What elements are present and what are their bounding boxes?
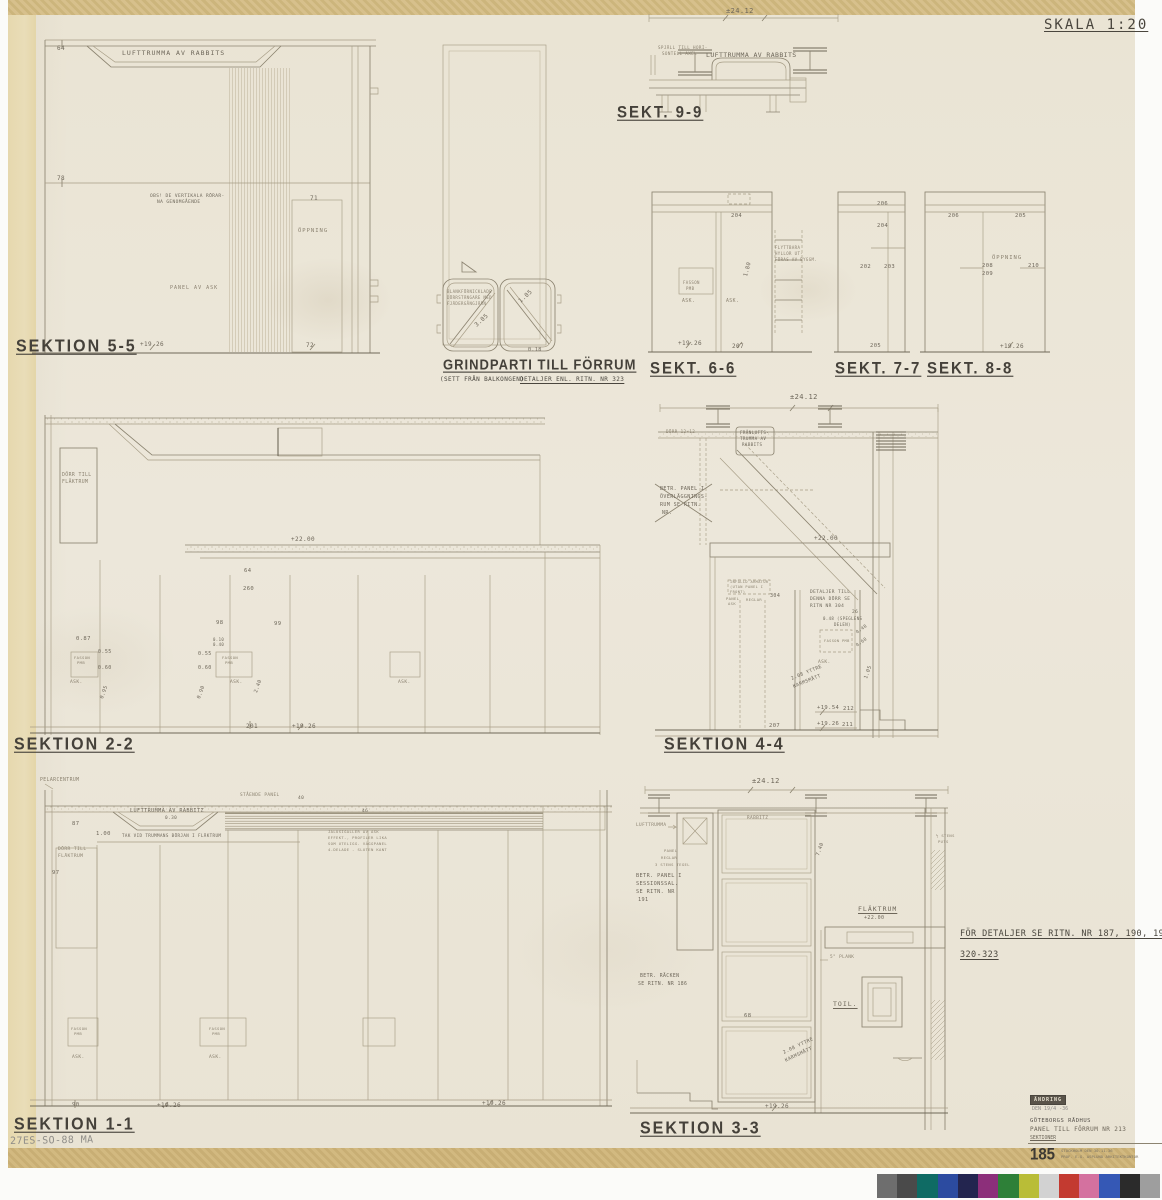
label-dim-030-s11: 0.30 bbox=[165, 817, 177, 821]
label-dim-211-s44: 211 bbox=[842, 723, 853, 729]
label-jalusi-4: 4-DELADE - SLUTEN KANT bbox=[328, 848, 387, 852]
label-franluft-2: TRUMMA AV bbox=[740, 437, 766, 441]
label-dim-1926-s33: +19.26 bbox=[765, 1104, 789, 1110]
label-fasson-s44: FASSON PMB bbox=[824, 640, 850, 644]
label-pencil-note: 27ES-SO-88 MA bbox=[10, 1136, 94, 1147]
label-spegel-1: 0.48 (SPEGLENS bbox=[823, 617, 862, 621]
label-dim-78-s55: 78 bbox=[57, 176, 65, 182]
drawing-content: SEKTIONER bbox=[1030, 1136, 1162, 1141]
label-dim-740-s33: 7.40 bbox=[816, 842, 825, 857]
label-franluft-1: FRÅNLUFTS- bbox=[740, 431, 769, 435]
label-dim-1926-s66: +19.26 bbox=[678, 341, 702, 347]
label-dim-2412-s44: ±24.12 bbox=[790, 394, 818, 401]
label-grind-sub-1: (SETT FRÅN BALKONGEN) bbox=[440, 377, 524, 383]
label-tegel-s33: 3 STENS TEGEL bbox=[655, 863, 690, 867]
label-dim-2412-s33: ±24.12 bbox=[752, 778, 780, 785]
label-note-hyllor-3: FÖRAS AV BYGGM. bbox=[775, 258, 817, 262]
label-toil-s33: TOIL. bbox=[833, 1001, 858, 1008]
label-dim-26-s44: 26 bbox=[852, 611, 858, 616]
label-staende-panel: STÅENDE PANEL bbox=[240, 794, 280, 798]
label-panel-s33: PANEL bbox=[664, 849, 677, 853]
label-spegel-2: DELEN) bbox=[834, 623, 851, 627]
label-dorr-flaktrum-s22-1: DÖRR TILL bbox=[62, 474, 92, 479]
label-title-s99: SEKT. 9-9 bbox=[617, 104, 703, 121]
label-details-ref-1: FÖR DETALJER SE RITN. NR 187, 190, 194, bbox=[960, 930, 1162, 939]
label-dim-055a-s22: 0.55 bbox=[98, 650, 112, 655]
label-dim-98-s22: 98 bbox=[216, 621, 223, 627]
color-patch bbox=[1140, 1174, 1160, 1198]
label-flaktrum-s33: FLÄKTRUM bbox=[858, 906, 897, 913]
label-dim-1926b-s44: +19.26 bbox=[817, 722, 839, 728]
label-jalusi-3: SOM UTELIGG. VÄGGPANEL bbox=[328, 842, 387, 846]
label-title-s22: SEKTION 2-2 bbox=[14, 736, 135, 754]
label-dim-204-s66: 204 bbox=[731, 214, 742, 220]
stamp-label: ÄNDRING bbox=[1030, 1095, 1066, 1105]
revision-stamp: ÄNDRING DEN 19/4 -36 bbox=[1030, 1086, 1068, 1112]
label-dim-1926-s55: +19.26 bbox=[140, 342, 164, 348]
label-rabbitz-s33: RABBITZ bbox=[747, 817, 768, 821]
label-lufttrumma-s11: LUFTTRUMMA AV RABBITZ bbox=[130, 809, 204, 814]
label-title-s44: SEKTION 4-4 bbox=[664, 736, 785, 754]
label-title-s77: SEKT. 7-7 bbox=[835, 360, 921, 377]
label-detaljer-dorr-2: DENNA DÖRR SE bbox=[810, 598, 850, 603]
label-reglar-s33: REGLAR bbox=[661, 856, 677, 860]
label-dim-68-s33: 68 bbox=[744, 1014, 751, 1020]
label-dim-305-grind: 3.05 bbox=[474, 313, 490, 328]
color-patch bbox=[1059, 1174, 1079, 1198]
label-ask-s11b: ASK. bbox=[209, 1056, 222, 1061]
label-dim-060-s44: 0.60 bbox=[856, 638, 869, 649]
color-patch bbox=[897, 1174, 917, 1198]
label-dim-105-grind: 1.05 bbox=[518, 289, 534, 304]
label-tak-vid: TAK VID TRUMMANS BÖRJAN I FLÄKTRUM bbox=[122, 834, 221, 838]
label-dim-205-s88: 205 bbox=[1015, 214, 1026, 220]
label-fasson-s22b-2: PMB bbox=[225, 661, 233, 665]
label-dim-97-s11: 97 bbox=[52, 871, 59, 877]
label-dim-095-s22: 0.95 bbox=[100, 685, 109, 700]
color-patch bbox=[998, 1174, 1018, 1198]
label-note-blank-3: FJÄDERGÅNGJÄRN bbox=[447, 302, 486, 306]
label-betr-racken-2: SE RITN. NR 186 bbox=[638, 983, 687, 988]
label-dim-209-s88: 209 bbox=[982, 272, 993, 278]
label-title-s11: SEKTION 1-1 bbox=[14, 1116, 135, 1134]
label-dim-100-s11: 1.00 bbox=[96, 832, 111, 838]
label-dim-1926b-s11: +19.26 bbox=[482, 1101, 506, 1107]
label-note-obs-2: NA GENOMGÅENDE bbox=[157, 201, 201, 206]
color-patch bbox=[938, 1174, 958, 1198]
label-dim-2200-s44: +22.00 bbox=[814, 536, 838, 542]
label-dim-206-s88: 206 bbox=[948, 214, 959, 220]
label-betr-panel-1: BETR. PANEL I bbox=[636, 874, 682, 879]
label-dim-203-s77: 203 bbox=[884, 265, 895, 271]
label-note-hyllor-2: HYLLOR UT- bbox=[775, 252, 803, 256]
label-dim-018-grind: 0.18 bbox=[528, 348, 542, 353]
label-crossed-1: BETR. PANEL I bbox=[660, 487, 704, 492]
label-panel-ask-s55: PANEL AV ASK bbox=[170, 286, 218, 291]
label-dim-87-s11: 87 bbox=[72, 822, 79, 828]
label-jalusi-1: JALUSIGALLER AV ASK bbox=[328, 830, 379, 834]
architect-name: PROF. E.G. ASPLUND ARKITEKTKONTOR bbox=[1061, 1154, 1138, 1160]
label-dim-087-s22: 0.87 bbox=[76, 637, 91, 643]
drawing-number: 185 bbox=[1030, 1145, 1055, 1164]
label-dim-205-s77: 205 bbox=[870, 344, 881, 350]
label-details-ref-2: 320-323 bbox=[960, 951, 999, 960]
label-dim-202-s77: 202 bbox=[860, 265, 871, 271]
label-dim-260-s22: 260 bbox=[243, 587, 254, 593]
color-patch bbox=[1019, 1174, 1039, 1198]
label-dim-040-s22: 0.40 bbox=[213, 643, 224, 647]
label-puts-s33-2: PUTS bbox=[938, 840, 949, 844]
label-oppning-s55: ÖPPNING bbox=[298, 229, 328, 235]
label-betr-panel-4: 191 bbox=[638, 898, 649, 903]
label-dim-64-s55: 64 bbox=[57, 46, 65, 52]
label-dim-055b-s22: 0.55 bbox=[198, 652, 212, 657]
label-dorr-flaktrum-s22-2: FLÄKTRUM bbox=[62, 481, 88, 486]
label-reglar-s44: REGLAR bbox=[746, 598, 762, 602]
label-panel-s44-2: ASK bbox=[728, 602, 736, 606]
label-dim-99-s22: 99 bbox=[274, 622, 281, 628]
label-dim-210-s88: 210 bbox=[1028, 264, 1039, 270]
label-dim-204-s77: 204 bbox=[877, 224, 888, 230]
label-dim-2412-s99: ±24.12 bbox=[726, 8, 754, 15]
label-betr-panel-2: SESSIONSSAL. bbox=[636, 882, 678, 887]
label-dim-060b-s22: 0.60 bbox=[198, 666, 212, 671]
label-fasson-s66-1: FASSON bbox=[683, 281, 700, 285]
label-lufttrumma-s55: LUFTTRUMMA AV RABBITS bbox=[122, 50, 225, 57]
color-patch bbox=[1120, 1174, 1140, 1198]
label-fasson-s11b-2: PMB bbox=[212, 1032, 220, 1036]
stamp-date: DEN 19/4 -36 bbox=[1032, 1106, 1068, 1112]
label-armatur-3: FRONT) bbox=[730, 591, 745, 595]
label-title-s55: SEKTION 5-5 bbox=[16, 338, 137, 356]
title-block: ÄNDRING DEN 19/4 -36 GÖTEBORGS RÅDHUS PA… bbox=[1028, 1086, 1162, 1162]
color-calibration-bar bbox=[877, 1174, 1160, 1198]
label-note-obs-1: OBS! DE VERTIKALA RÖRAR- bbox=[150, 195, 225, 200]
label-dim-2200-s33: +22.00 bbox=[864, 916, 884, 921]
label-ask-s22a: ASK. bbox=[70, 681, 83, 686]
color-patch bbox=[877, 1174, 897, 1198]
label-crossed-2: ÖVERLÄGGNINGS- bbox=[660, 495, 708, 500]
label-fasson-s66-2: PMB bbox=[686, 287, 694, 291]
label-betr-panel-3: SE RITN. NR bbox=[636, 890, 675, 895]
label-crossed-4: NR. bbox=[662, 511, 672, 516]
color-patch bbox=[1099, 1174, 1119, 1198]
label-lufttrumma-s99: LUFTTRUMMA AV RABBITS bbox=[706, 52, 797, 59]
label-dim-40-s11: 40 bbox=[298, 797, 304, 802]
signature-block: STOCKHOLM DEN 30.11.36 PROF. E.G. ASPLUN… bbox=[1061, 1145, 1138, 1161]
label-note-spjall-2: SONTELL AXEL bbox=[662, 52, 697, 56]
annotation-layer: SKALA 1:20±24.12SPJÄLL TILL HORI-SONTELL… bbox=[0, 0, 1162, 1200]
label-dorr-s11-2: FLÄKTRUM bbox=[58, 855, 83, 860]
label-dim-105-s44: 1.05 bbox=[864, 665, 873, 680]
label-title-grind: GRINDPARTI TILL FÖRRUM bbox=[443, 357, 636, 372]
label-dim-1954-s44: +19.54 bbox=[817, 706, 839, 712]
label-dim-90-s11: 90 bbox=[72, 1103, 79, 1109]
label-dorr-dim-s44: DÖRR 12×12 bbox=[666, 430, 695, 434]
label-title-s66: SEKT. 6-6 bbox=[650, 360, 736, 377]
color-patch bbox=[978, 1174, 998, 1198]
label-dim-207-s44: 207 bbox=[769, 724, 780, 730]
label-dim-090-s22: 0.90 bbox=[197, 685, 206, 700]
label-detaljer-dorr-1: DETALJER TILL bbox=[810, 591, 850, 596]
label-dim-1926-s22: +19.26 bbox=[292, 724, 316, 730]
label-dorr-s11-1: DÖRR TILL bbox=[58, 848, 87, 853]
label-dim-208-s88: 208 bbox=[982, 264, 993, 270]
label-dim-206-s77: 206 bbox=[877, 202, 888, 208]
label-dim-240-s22: 2.40 bbox=[254, 679, 263, 694]
scanned-drawing-sheet: SKALA 1:20±24.12SPJÄLL TILL HORI-SONTELL… bbox=[0, 0, 1162, 1200]
label-franluft-3: RABBITS bbox=[742, 443, 762, 447]
label-ask-s66-b: ASK. bbox=[726, 300, 739, 305]
label-ask-s66-a: ASK. bbox=[682, 300, 695, 305]
label-dim-207-s66: 207 bbox=[732, 344, 744, 350]
label-ask-s22c: ASK. bbox=[398, 681, 411, 686]
label-puts-s33-1: ½ STENS bbox=[936, 834, 955, 838]
label-oppning-s88: ÖPPNING bbox=[992, 256, 1022, 262]
label-dim-64-s22: 64 bbox=[244, 569, 251, 575]
label-dim-1926-s88: +19.26 bbox=[1000, 344, 1024, 350]
label-dim-180-s66: 1.80 bbox=[744, 262, 753, 278]
label-dim-2200-s22: +22.00 bbox=[291, 537, 315, 543]
label-ask-s11a: ASK. bbox=[72, 1056, 85, 1061]
label-dim-71-s55: 71 bbox=[310, 196, 318, 202]
label-note-blank-1: BLANKFÖRNICKLADE bbox=[447, 290, 492, 294]
label-title-s88: SEKT. 8-8 bbox=[927, 360, 1013, 377]
label-dim-201-s22: 201 bbox=[246, 724, 258, 730]
label-note-spjall-1: SPJÄLL TILL HORI- bbox=[658, 46, 708, 50]
label-lufttrumma-s33: LUFTTRUMMA bbox=[636, 824, 666, 828]
label-dim-46-s11: 46 bbox=[362, 810, 368, 815]
label-title-s33: SEKTION 3-3 bbox=[640, 1120, 761, 1138]
label-jalusi-2: EFFEKT-, PROFILER LIKA bbox=[328, 836, 387, 840]
label-dim-1926a-s11: +19.26 bbox=[157, 1103, 181, 1109]
color-patch bbox=[1079, 1174, 1099, 1198]
label-note-blank-2: DÖRRSTÄNGARE MED bbox=[447, 296, 492, 300]
label-plank-s33: 5" PLANK bbox=[830, 956, 854, 960]
drawing-subject: PANEL TILL FÖRRUM NR 213 bbox=[1030, 1126, 1162, 1133]
title-block-number-row: 185 STOCKHOLM DEN 30.11.36 PROF. E.G. AS… bbox=[1028, 1143, 1162, 1162]
label-note-hyllor-1: FLYTTBARA bbox=[775, 246, 800, 250]
label-dim-212-s44: 212 bbox=[843, 707, 854, 713]
label-betr-racken-1: BETR. RÄCKEN bbox=[640, 975, 679, 980]
color-patch bbox=[917, 1174, 937, 1198]
label-ask-s22b: ASK. bbox=[230, 681, 243, 686]
label-crossed-3: RUM SE RITN. bbox=[660, 503, 701, 508]
label-detaljer-dorr-3: RITN NR 304 bbox=[810, 605, 844, 610]
label-grind-sub-2: DETALJER ENL. RITN. NR 323 bbox=[520, 377, 624, 383]
label-fasson-s22a-2: PMB bbox=[77, 661, 85, 665]
label-pelarcentrum: PELARCENTRUM bbox=[40, 779, 79, 784]
label-dim-048-s44: 0.48 bbox=[856, 625, 869, 636]
color-patch bbox=[1039, 1174, 1059, 1198]
project-title: GÖTEBORGS RÅDHUS bbox=[1030, 1118, 1162, 1124]
label-dim-060a-s22: 0.60 bbox=[98, 666, 112, 671]
label-skala: SKALA 1:20 bbox=[1044, 18, 1148, 32]
label-dim-304-s44: 304 bbox=[770, 594, 780, 599]
label-dim-72-s55: 72 bbox=[306, 343, 314, 349]
label-fasson-s11a-2: PMB bbox=[74, 1032, 82, 1036]
color-patch bbox=[958, 1174, 978, 1198]
